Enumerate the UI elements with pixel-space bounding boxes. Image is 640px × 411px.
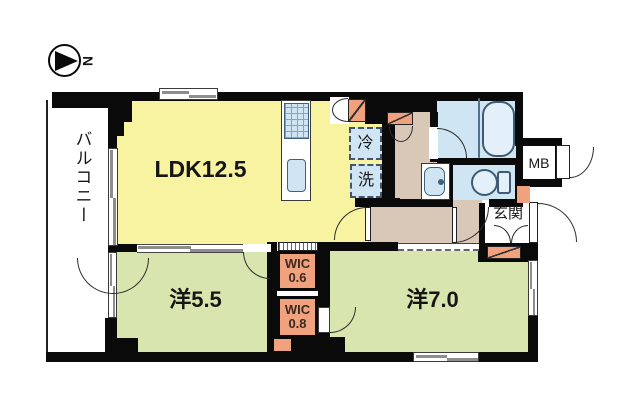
- door-arc-entrance: [538, 203, 577, 242]
- north-label: N: [81, 56, 95, 66]
- entrance-step: [487, 246, 521, 259]
- window-ldk-balcony: [108, 148, 118, 246]
- wall-wic-right-upper: [318, 242, 330, 307]
- window-sash: [447, 358, 478, 361]
- kitchen-sink: [287, 159, 306, 192]
- pillar-salmon: [517, 186, 530, 203]
- window-sash: [533, 289, 535, 315]
- wic06-folding-door: [278, 242, 318, 251]
- refrigerator-box: 冷: [349, 127, 382, 160]
- wic-0-8-name: WIC: [285, 303, 310, 317]
- room-label-entrance: 玄関: [487, 206, 529, 221]
- door-leaf-mb: [556, 145, 570, 179]
- meter-box: MB: [523, 146, 555, 179]
- refrigerator-label: 冷: [357, 136, 373, 152]
- window-ldk-top: [159, 88, 218, 100]
- wall-top-chunk-2: [387, 98, 437, 112]
- toilet-tank-icon: [497, 171, 511, 194]
- wic-0-8-size: 0.8: [288, 317, 306, 331]
- north-arrow-triangle: [55, 51, 78, 71]
- washbasin-icon: [421, 163, 450, 200]
- wall-below-basin: [398, 199, 453, 207]
- door-arc-mb: [570, 147, 594, 178]
- stove-icon: [284, 103, 309, 139]
- sliding-door-ldk-w55: [137, 244, 244, 253]
- bath-divider: [478, 98, 480, 158]
- wic-0-6-name: WIC: [285, 257, 310, 271]
- wall-ldk-w55-mid: [318, 242, 398, 251]
- wall-top-balcony: [52, 92, 110, 108]
- wall-w70-right-lower: [528, 316, 538, 354]
- window-sash: [189, 95, 216, 98]
- sliding-door-hall-w70: [398, 243, 479, 251]
- room-label-west55: 洋5.5: [148, 289, 243, 311]
- window-w70-right: [528, 260, 538, 316]
- bathtub-icon: [482, 101, 515, 157]
- wall-washer-bottom: [355, 198, 400, 207]
- sliding-panel: [138, 246, 191, 249]
- washbasin-faucet: [438, 179, 444, 185]
- sliding-panel: [190, 249, 243, 252]
- door-opening-wic08: [318, 307, 330, 333]
- window-w70-bottom: [413, 352, 479, 362]
- floor-plan: 冷 洗 MB WIC 0.6 WIC 0.8 LDK12.5 洋5.5 洋7.0…: [0, 0, 640, 411]
- window-sash: [416, 355, 447, 358]
- door-opening: [243, 244, 271, 252]
- room-label-ldk: LDK12.5: [118, 158, 283, 181]
- wall-top-chunk-1: [365, 98, 387, 124]
- wall-step-1: [108, 98, 132, 122]
- room-label-balcony: バルコニー: [65, 130, 99, 265]
- window-sash: [110, 150, 113, 198]
- door-leaf-hall-ldk: [365, 207, 371, 241]
- toilet-bowl-icon: [471, 169, 498, 196]
- wic-0-6: WIC 0.6: [277, 251, 318, 291]
- meter-box-label: MB: [529, 156, 550, 170]
- door-leaf-entrance: [529, 202, 538, 243]
- room-label-west70: 洋7.0: [385, 289, 480, 311]
- window-sash: [530, 262, 532, 289]
- pillar-salmon-small: [274, 339, 291, 351]
- wic-0-6-size: 0.6: [288, 271, 306, 285]
- door-leaf-hall: [387, 112, 413, 125]
- washer-label: 洗: [358, 173, 374, 189]
- window-sash: [113, 198, 116, 245]
- washer-box: 洗: [350, 164, 382, 198]
- door-leaf-ldk-hall: [348, 99, 366, 122]
- window-sash: [162, 91, 189, 94]
- wic-0-8: WIC 0.8: [277, 296, 318, 338]
- north-arrow-icon: N: [46, 42, 100, 82]
- wall-bottom-left: [46, 352, 413, 362]
